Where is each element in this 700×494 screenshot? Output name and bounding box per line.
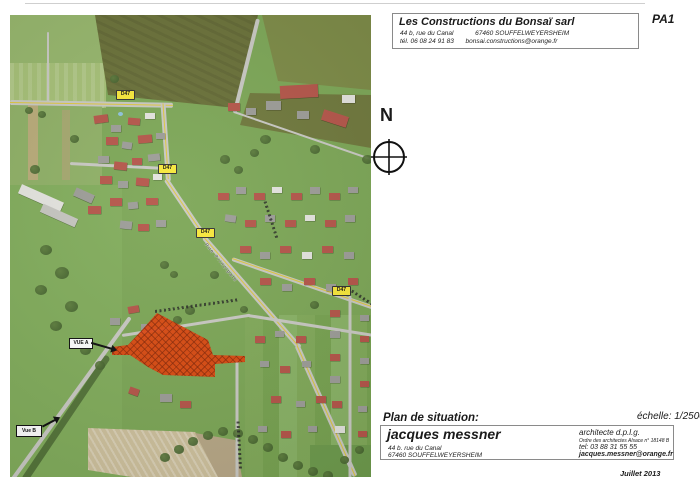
building: [348, 187, 358, 193]
building: [128, 202, 139, 210]
building: [305, 215, 315, 221]
building: [148, 153, 161, 161]
building: [330, 331, 340, 338]
tree: [260, 135, 271, 144]
company-phone: tél. 06 08 24 91 83: [400, 38, 454, 45]
view-a-label: VUE A: [69, 338, 93, 349]
building: [128, 387, 140, 397]
tree: [263, 443, 273, 452]
tree: [160, 453, 170, 462]
road-badge-d47: D47: [116, 90, 135, 100]
tree: [70, 135, 79, 143]
building: [280, 366, 290, 373]
tree: [250, 149, 259, 157]
building: [332, 401, 342, 408]
tree: [95, 361, 105, 370]
building: [258, 426, 267, 432]
building: [272, 187, 282, 193]
tree: [188, 437, 198, 446]
road-badge-d47: D47: [196, 228, 215, 238]
tree: [110, 75, 119, 83]
tree: [220, 155, 230, 164]
tree: [210, 271, 219, 279]
building: [266, 101, 281, 110]
tree: [310, 301, 319, 309]
company-address: 44 b, rue du Canal: [400, 30, 453, 37]
building: [330, 310, 340, 317]
building: [180, 401, 191, 408]
road: [47, 32, 49, 102]
tree: [170, 271, 178, 278]
building: [271, 396, 281, 403]
building: [275, 331, 284, 337]
building: [296, 336, 306, 343]
building: [114, 161, 128, 170]
road: [248, 314, 371, 337]
building: [310, 187, 320, 194]
building: [302, 361, 311, 367]
architect-tel: tel: 03 88 31 55 55: [579, 444, 637, 451]
company-name: Les Constructions du Bonsaï sarl: [399, 16, 574, 28]
building: [260, 252, 270, 259]
scale-label: échelle: 1/2500: [637, 411, 700, 422]
tree: [240, 306, 248, 313]
building: [145, 113, 155, 119]
building: [360, 315, 369, 321]
architect-email: jacques.messner@orange.fr: [579, 451, 673, 458]
building: [106, 137, 118, 145]
building: [280, 84, 319, 99]
building: [280, 246, 291, 253]
building: [330, 354, 340, 361]
building: [98, 156, 109, 163]
building: [94, 114, 109, 124]
pool: [118, 112, 123, 116]
building: [132, 158, 142, 165]
building: [255, 336, 265, 343]
tree: [25, 107, 33, 114]
tree: [40, 245, 52, 255]
building: [160, 394, 172, 402]
building: [260, 278, 271, 285]
building: [345, 215, 355, 222]
building: [260, 361, 269, 367]
building: [360, 336, 369, 342]
building: [282, 284, 292, 291]
building: [344, 252, 354, 259]
tree: [50, 321, 62, 331]
building: [291, 193, 302, 200]
architect-city: 67460 SOUFFELWEYERSHEIM: [388, 452, 482, 459]
tree: [323, 471, 333, 477]
building: [138, 224, 149, 231]
building: [321, 109, 349, 127]
road: [10, 100, 173, 108]
tree: [30, 165, 40, 174]
plan-sheet: Rue Principale D47 D47 D47 D47 VUE A Vue…: [0, 0, 700, 494]
building: [316, 396, 326, 403]
architect-title: architecte d.p.l.g.: [579, 428, 640, 437]
building: [335, 426, 345, 433]
building: [73, 187, 95, 203]
company-contact-line: tél. 06 08 24 91 83 bonsai.constructions…: [400, 38, 557, 45]
architect-title-block: jacques messner 44 b. rue du Canal 67460…: [380, 425, 674, 460]
tree: [340, 456, 349, 464]
architect-name: jacques messner: [387, 426, 501, 442]
building: [153, 174, 162, 180]
building: [325, 220, 336, 227]
document-code: PA1: [652, 12, 674, 26]
tree: [248, 435, 258, 444]
tree: [218, 427, 228, 436]
sheet-title: Plan de situation:: [383, 412, 479, 424]
building: [360, 358, 369, 364]
building: [285, 220, 296, 227]
building: [358, 431, 367, 437]
building: [360, 381, 369, 387]
tree: [293, 461, 303, 470]
building: [342, 95, 355, 103]
road-badge-d47: D47: [332, 286, 351, 296]
building: [225, 214, 237, 222]
tree: [55, 267, 69, 279]
view-b-label: Vue B: [16, 425, 42, 437]
road-badge-d47: D47: [158, 164, 177, 174]
building: [297, 111, 309, 119]
building: [127, 305, 139, 314]
building: [358, 406, 367, 412]
building: [88, 206, 101, 214]
tree: [310, 145, 320, 154]
building: [330, 376, 340, 383]
sheet-date: Juillet 2013: [620, 469, 660, 478]
building: [245, 220, 256, 227]
map-decor: [10, 15, 371, 477]
building: [100, 176, 112, 184]
tree: [160, 261, 169, 269]
building: [322, 246, 333, 253]
building: [304, 278, 315, 285]
building: [236, 187, 246, 194]
building: [136, 177, 150, 186]
tree: [355, 446, 364, 454]
tree: [278, 453, 288, 462]
building: [348, 278, 358, 285]
building: [156, 220, 166, 227]
building: [228, 103, 240, 111]
company-title-block: Les Constructions du Bonsaï sarl 44 b, r…: [392, 13, 639, 49]
compass-icon: [371, 139, 407, 175]
building: [110, 198, 122, 206]
building: [302, 252, 312, 259]
tree: [174, 445, 184, 454]
tree: [234, 166, 243, 174]
building: [110, 318, 120, 325]
tree: [35, 285, 47, 295]
page-border-line: [25, 3, 645, 4]
building: [138, 134, 153, 143]
building: [146, 198, 158, 205]
road: [233, 19, 260, 114]
road: [349, 296, 352, 478]
road-centerline: [10, 102, 173, 106]
company-email: bonsai.constructions@orange.fr: [465, 38, 557, 45]
building: [308, 426, 317, 432]
tree: [308, 467, 318, 476]
building: [122, 141, 133, 149]
tree: [38, 111, 46, 118]
building: [118, 181, 128, 188]
tree: [362, 155, 371, 164]
building: [254, 193, 265, 200]
north-label: N: [380, 105, 393, 126]
architect-address: 44 b. rue du Canal: [388, 445, 441, 452]
building: [120, 220, 133, 229]
building: [218, 193, 229, 200]
tree: [203, 431, 213, 440]
building: [111, 125, 121, 132]
company-address-line: 44 b, rue du Canal 67460 SOUFFELWEYERSHE…: [400, 30, 569, 37]
tree: [65, 301, 78, 312]
building: [281, 431, 291, 438]
company-city: 67460 SOUFFELWEYERSHEIM: [475, 30, 569, 37]
building: [128, 117, 141, 125]
building: [329, 193, 340, 200]
building: [246, 108, 256, 115]
building: [240, 246, 251, 253]
building: [296, 401, 305, 407]
building: [156, 133, 165, 139]
aerial-site-map: Rue Principale D47 D47 D47 D47 VUE A Vue…: [10, 15, 371, 477]
